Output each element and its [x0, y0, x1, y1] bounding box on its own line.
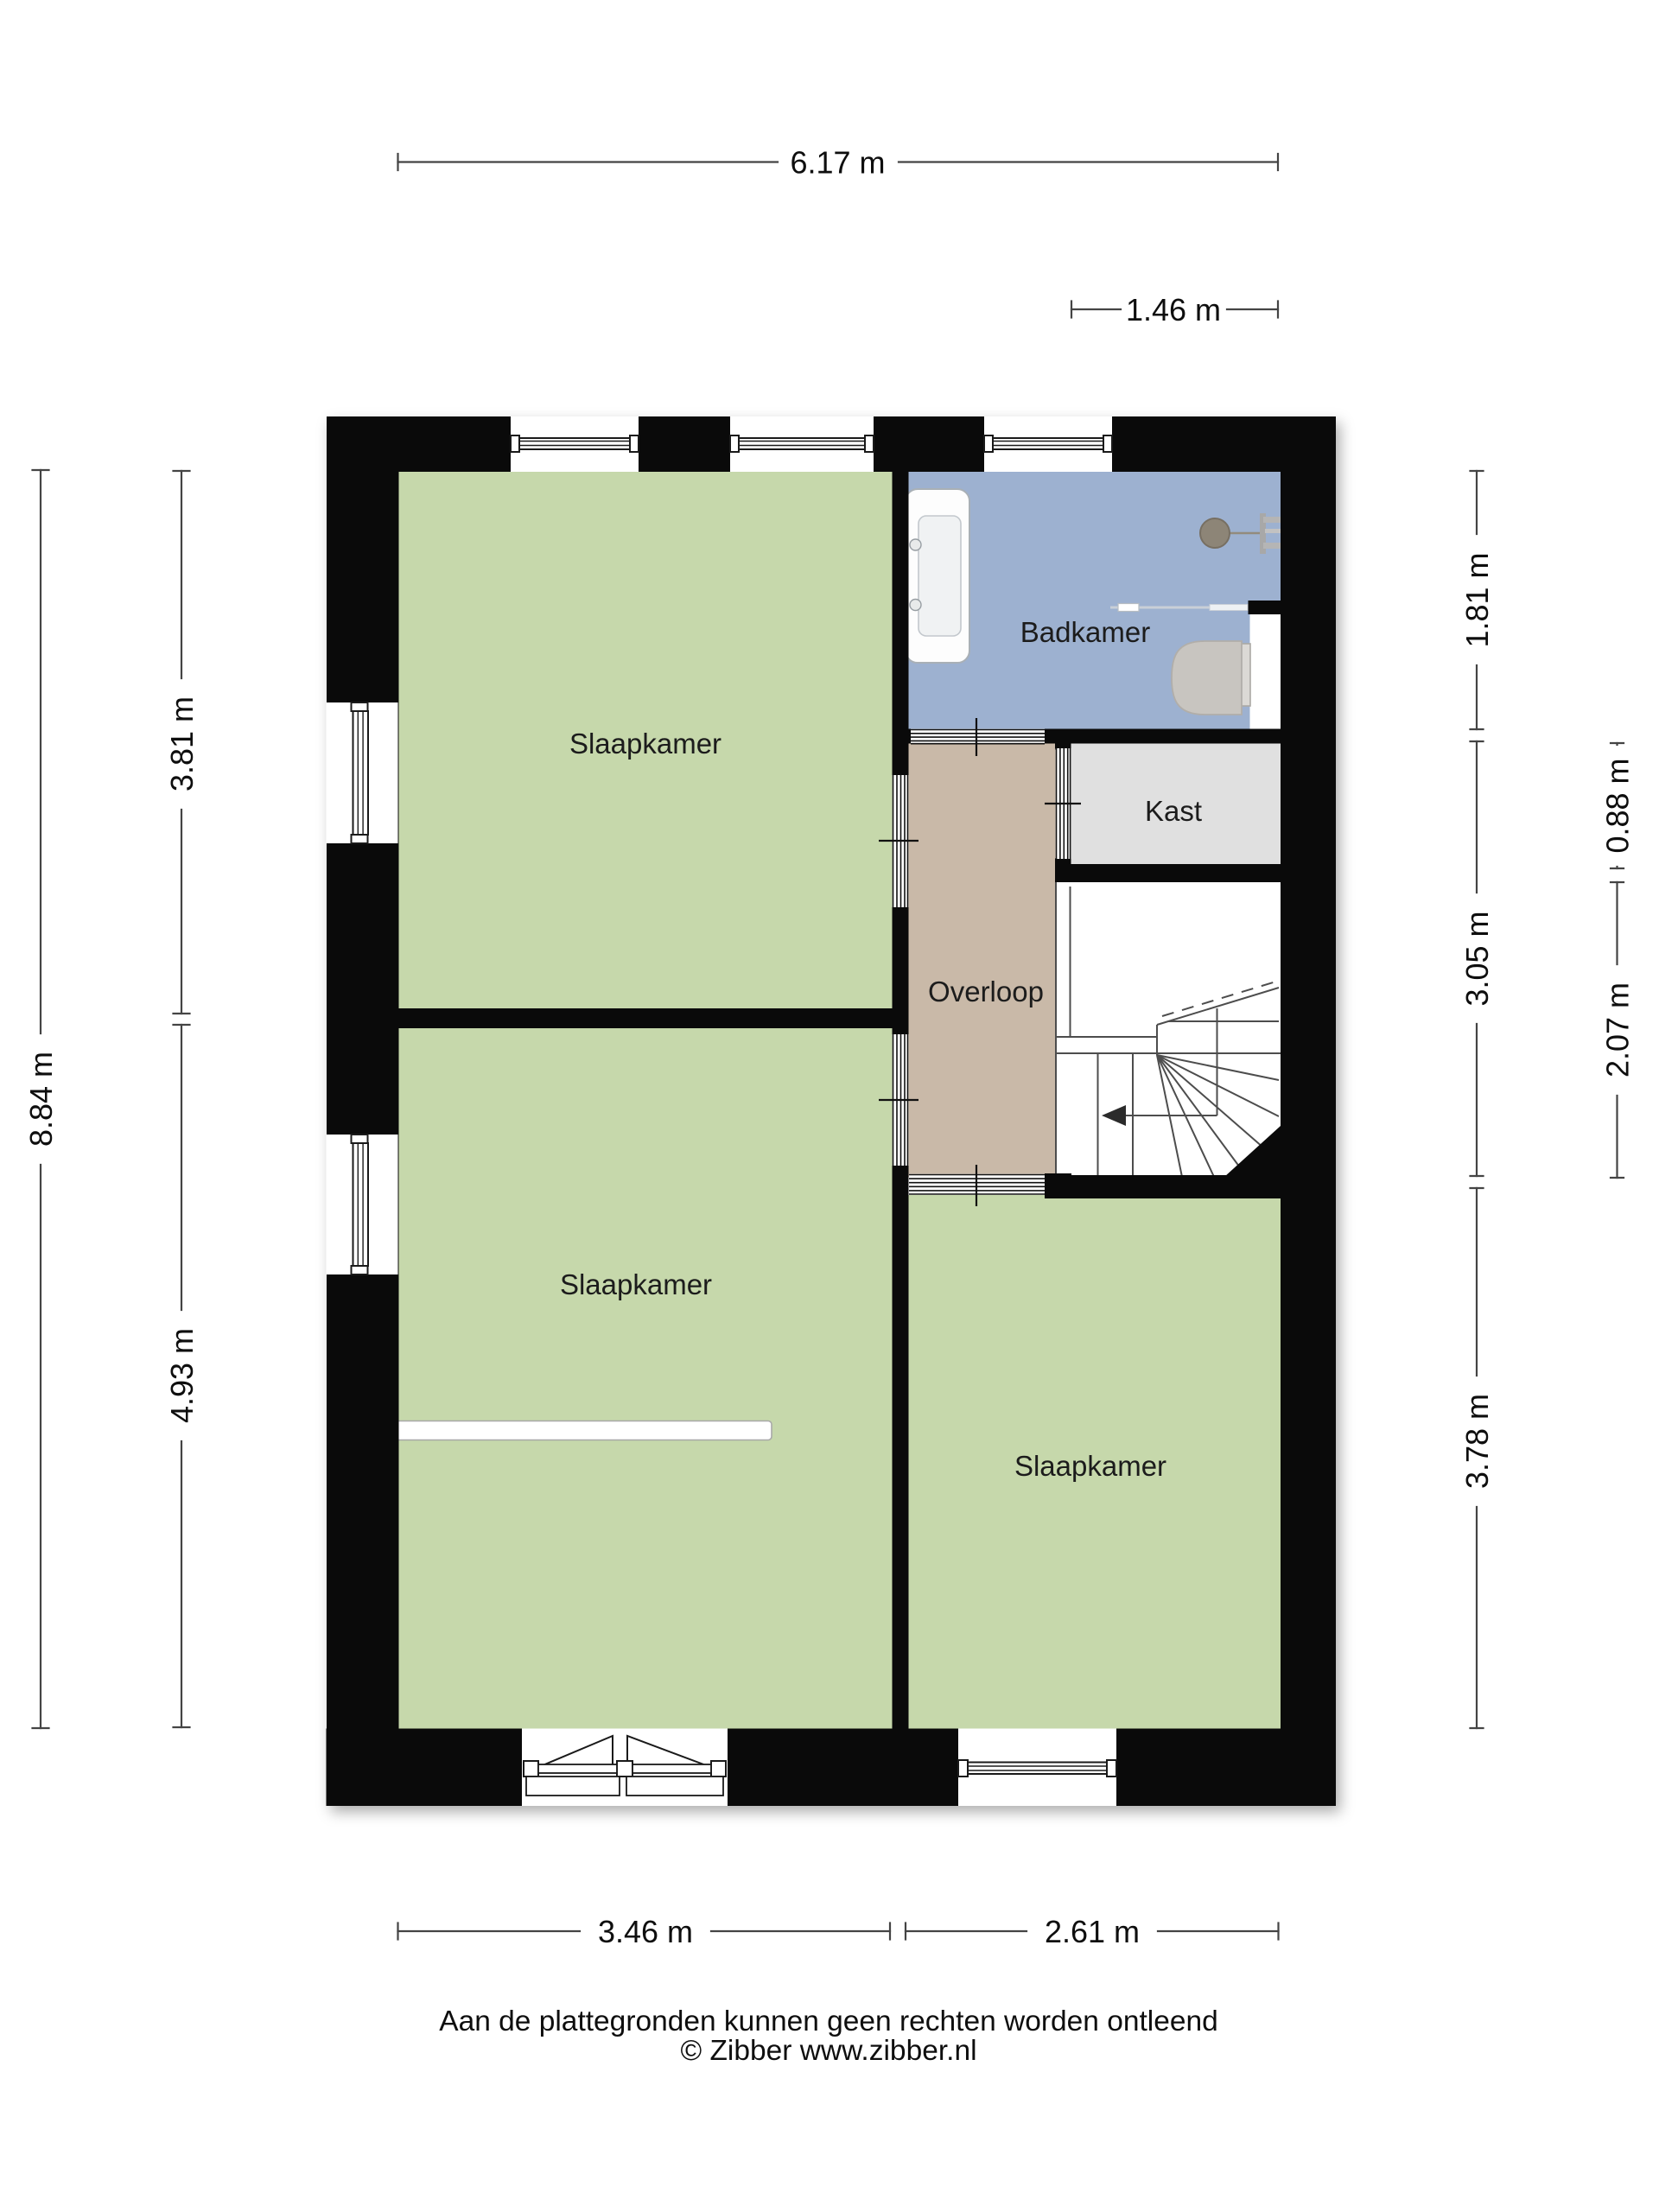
svg-text:8.84 m: 8.84 m [23, 1052, 59, 1147]
svg-text:2.07 m: 2.07 m [1600, 982, 1636, 1077]
svg-text:Overloop: Overloop [928, 976, 1044, 1007]
svg-text:Kast: Kast [1145, 795, 1202, 827]
svg-text:Slaapkamer: Slaapkamer [560, 1268, 712, 1300]
svg-text:3.78 m: 3.78 m [1459, 1394, 1495, 1489]
svg-text:3.81 m: 3.81 m [164, 696, 200, 791]
svg-text:Slaapkamer: Slaapkamer [569, 728, 721, 760]
svg-text:Slaapkamer: Slaapkamer [1014, 1450, 1166, 1482]
svg-text:2.61 m: 2.61 m [1045, 1914, 1140, 1949]
svg-text:© Zibber www.zibber.nl: © Zibber www.zibber.nl [680, 2035, 976, 2067]
svg-text:3.46 m: 3.46 m [598, 1914, 693, 1949]
svg-text:6.17 m: 6.17 m [790, 145, 885, 181]
svg-text:3.05 m: 3.05 m [1459, 911, 1495, 1006]
svg-text:1.46 m: 1.46 m [1126, 292, 1221, 327]
svg-text:1.81 m: 1.81 m [1459, 552, 1495, 647]
svg-text:Badkamer: Badkamer [1020, 616, 1150, 648]
svg-text:0.88 m: 0.88 m [1600, 758, 1636, 853]
svg-text:4.93 m: 4.93 m [164, 1328, 200, 1423]
svg-text:Aan de plattegronden kunnen ge: Aan de plattegronden kunnen geen rechten… [439, 2005, 1218, 2037]
